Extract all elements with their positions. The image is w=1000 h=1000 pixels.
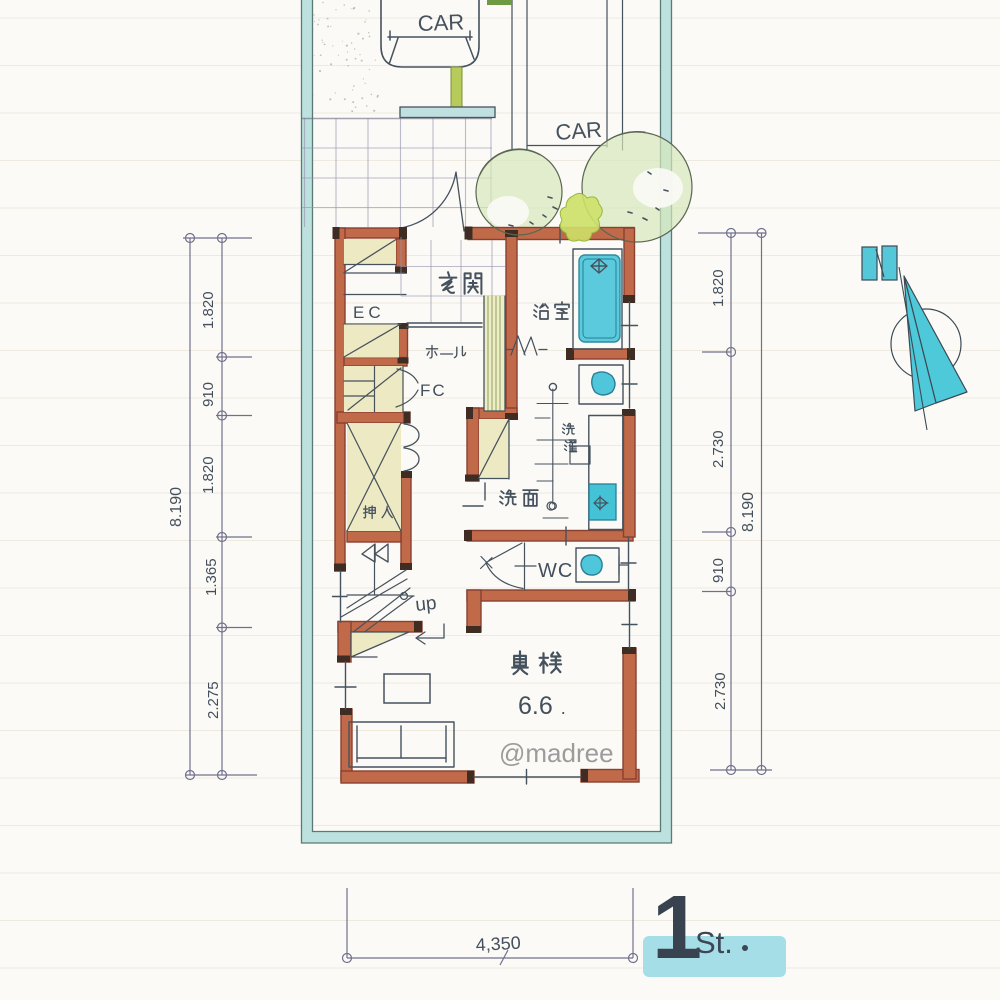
- svg-text:910: 910: [710, 558, 727, 583]
- svg-text:8.190: 8.190: [168, 487, 185, 527]
- svg-text:2.730: 2.730: [712, 672, 729, 710]
- svg-text:WC: WC: [538, 560, 573, 582]
- svg-text:1.365: 1.365: [203, 558, 220, 596]
- svg-text:910: 910: [200, 382, 217, 407]
- svg-text:1.820: 1.820: [200, 291, 217, 329]
- svg-text:4,350: 4,350: [475, 933, 521, 955]
- svg-text:1.820: 1.820: [200, 456, 217, 494]
- svg-text:8.190: 8.190: [740, 492, 757, 532]
- svg-text:CAR: CAR: [417, 9, 464, 36]
- svg-text:@madree: @madree: [499, 738, 614, 768]
- svg-text:up: up: [414, 593, 437, 616]
- svg-text:EC: EC: [353, 303, 385, 322]
- svg-text:CAR: CAR: [555, 117, 603, 145]
- svg-text:2.275: 2.275: [205, 681, 222, 719]
- svg-text:1.820: 1.820: [710, 269, 727, 307]
- svg-text:St.: St.: [695, 925, 733, 960]
- svg-text:2.730: 2.730: [710, 430, 727, 468]
- svg-text:FC: FC: [420, 381, 447, 400]
